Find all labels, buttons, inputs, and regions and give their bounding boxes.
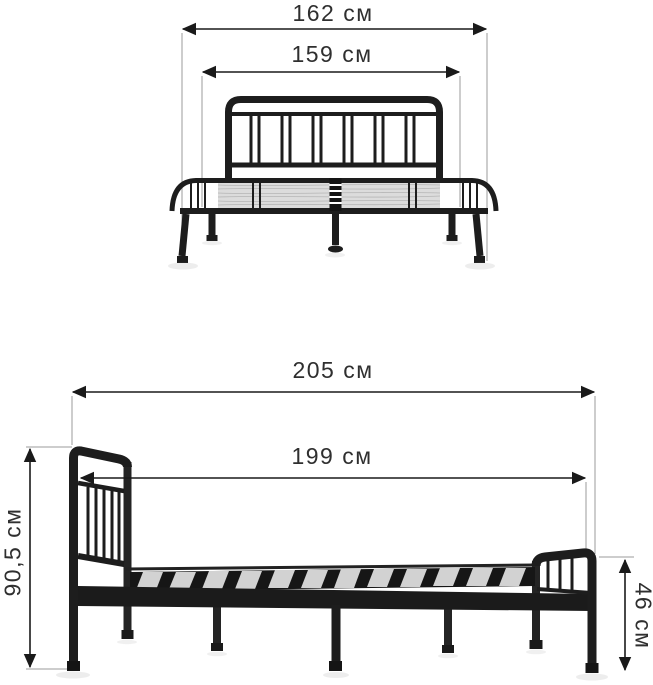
dimension-label-headboard-height: 90,5 см — [0, 508, 25, 597]
footboard-side — [536, 553, 599, 673]
side-extension-lines — [26, 396, 634, 669]
center-support-column — [330, 178, 342, 211]
bed-front-illustration — [168, 100, 496, 270]
headboard-front — [229, 100, 440, 184]
headboard-slats — [251, 116, 414, 163]
bed-dimensions-diagram: 162 см 159 см 205 см 199 см 90,5 см 46 с… — [0, 0, 653, 685]
platform-side — [78, 565, 592, 611]
dimension-label-side-inner-length: 199 см — [291, 444, 372, 469]
front-shadows — [168, 241, 495, 270]
dimension-label-side-outer-length: 205 см — [292, 358, 373, 383]
dimension-label-footboard-height: 46 см — [630, 583, 653, 650]
near-middle-leg — [329, 605, 342, 671]
headboard-side-slats — [78, 483, 124, 564]
bed-side-illustration — [56, 451, 608, 681]
mesh-surface — [218, 181, 440, 208]
dimension-label-front-outer-width: 162 см — [292, 1, 373, 26]
side-view-drawing — [0, 340, 653, 685]
dimension-label-front-inner-width: 159 см — [291, 42, 372, 67]
